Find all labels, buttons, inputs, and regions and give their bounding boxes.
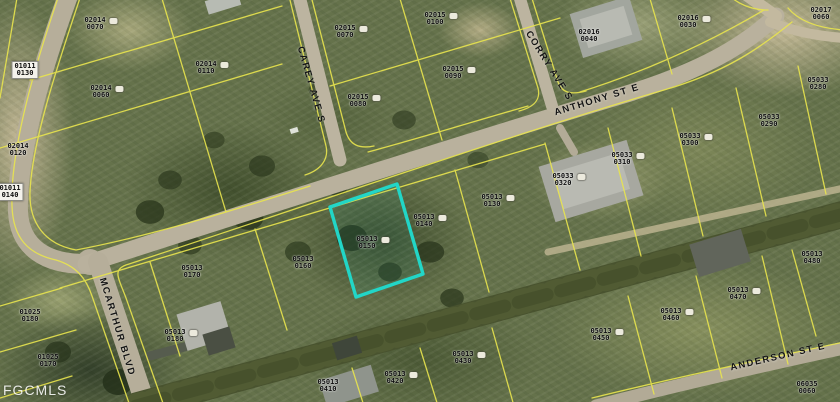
parcel-label-02014-0070: 020140070 xyxy=(84,17,105,31)
parcel-label-05013-0430: 050130430 xyxy=(452,351,473,365)
structure-icon xyxy=(686,309,694,315)
parcel-label-05013-0470: 050130470 xyxy=(727,287,748,301)
structure-icon xyxy=(478,352,486,358)
parcel-label-02015-0080: 020150080 xyxy=(347,94,368,108)
parcel-label-05013-0150-highlighted: 050130150 xyxy=(356,236,377,250)
parcel-label-05033-0290: 050330290 xyxy=(758,114,779,128)
structure-icon xyxy=(221,62,229,68)
structure-icon xyxy=(703,16,711,22)
parcel-label-02016-0040: 020160040 xyxy=(578,29,599,43)
structure-icon xyxy=(705,134,713,140)
parcel-label-05013-0170: 050130170 xyxy=(181,265,202,279)
structure-icon xyxy=(578,174,586,180)
parcel-label-02014-0120: 020140120 xyxy=(7,143,28,157)
mls-aerial-map[interactable]: 0201400700101101300201401100201400600201… xyxy=(0,0,840,402)
parcel-label-02017-0060: 020170060 xyxy=(810,7,831,21)
street-label-mcarthur-blvd: MCARTHUR BLVD xyxy=(97,277,137,378)
parcel-label-05013-0180: 050130180 xyxy=(164,329,185,343)
structure-icon xyxy=(410,372,418,378)
parcel-label-05013-0140: 050130140 xyxy=(413,214,434,228)
structure-icon xyxy=(439,215,447,221)
structure-icon xyxy=(110,18,118,24)
parcel-label-02015-0070: 020150070 xyxy=(334,25,355,39)
structure-icon xyxy=(382,237,390,243)
street-label-anderson-st-e: ANDERSON ST E xyxy=(729,341,827,374)
parcel-label-05013-0410: 050130410 xyxy=(317,379,338,393)
street-label-corry-ave-s: CORRY AVE S xyxy=(523,29,575,103)
parcel-label-05033-0300: 050330300 xyxy=(679,133,700,147)
structure-icon xyxy=(450,13,458,19)
structure-icon xyxy=(190,330,198,336)
parcel-label-05013-0420: 050130420 xyxy=(384,371,405,385)
parcel-label-06035-0060: 060350060 xyxy=(796,381,817,395)
parcel-label-05013-0160: 050130160 xyxy=(292,256,313,270)
structure-icon xyxy=(637,153,645,159)
structure-icon xyxy=(360,26,368,32)
parcel-label-05033-0320: 050330320 xyxy=(552,173,573,187)
parcel-label-02014-0060: 020140060 xyxy=(90,85,111,99)
parcel-label-05033-0280: 050330280 xyxy=(807,77,828,91)
parcel-label-01025-0180: 010250180 xyxy=(19,309,40,323)
parcel-label-05013-0480: 050130480 xyxy=(801,251,822,265)
structure-icon xyxy=(116,86,124,92)
parcel-label-05013-0450: 050130450 xyxy=(590,328,611,342)
parcel-label-01011-0130: 010110130 xyxy=(11,61,38,79)
parcel-label-02015-0100: 020150100 xyxy=(424,12,445,26)
fgcmls-watermark: FGCMLS xyxy=(3,382,67,398)
structure-icon xyxy=(468,67,476,73)
structure-icon xyxy=(616,329,624,335)
parcel-label-05033-0310: 050330310 xyxy=(611,152,632,166)
map-labels: 0201400700101101300201401100201400600201… xyxy=(0,0,840,402)
structure-icon xyxy=(507,195,515,201)
parcel-label-01025-0170: 010250170 xyxy=(37,354,58,368)
structure-icon xyxy=(373,95,381,101)
street-label-carey-ave-s: CAREY AVE S xyxy=(295,45,328,125)
structure-icon xyxy=(753,288,761,294)
parcel-label-02015-0090: 020150090 xyxy=(442,66,463,80)
parcel-label-02014-0110: 020140110 xyxy=(195,61,216,75)
parcel-label-01011-0140: 010110140 xyxy=(0,183,24,201)
parcel-label-05013-0130: 050130130 xyxy=(481,194,502,208)
parcel-label-02016-0030: 020160030 xyxy=(677,15,698,29)
parcel-label-05013-0460: 050130460 xyxy=(660,308,681,322)
